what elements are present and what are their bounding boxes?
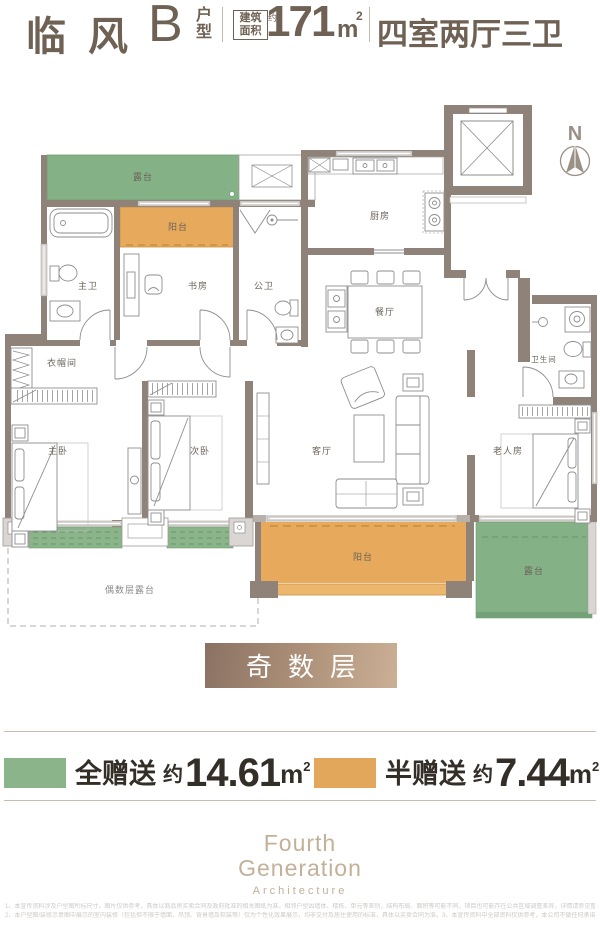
half-gift-label: 半赠送 [385,759,466,789]
label-terrace-top: 露台 [133,171,153,182]
disclaimer-line2: 2、本户型图/装修示意图中展示的室内装修（包括但不限于墙面、吊顶、背景墙及软装等… [5,912,595,921]
unit-letter: B [148,0,183,54]
brand-logo: Fourth Generation Architecture [0,831,600,897]
room-count-label: 四室两厅三卫 [377,9,563,54]
floorplan-page: 临风 B 户型 建筑 面积 约 171 m 2 四室两厅三卫 [0,0,600,934]
area-badge-line2: 面积 [240,25,262,37]
label-kitchen: 厨房 [370,210,390,221]
full-gift-approx: 约 [163,758,183,787]
label-elder-room: 老人房 [493,445,523,456]
full-gift-value: 14.61 [185,754,280,792]
full-gift-label: 全赠送 [75,759,156,789]
label-public-bath: 公卫 [254,281,274,291]
floorplan-drawing: N 露台 阳台 主卫 书房 公卫 厨房 餐厅 衣帽间 主卧 次卧 客厅 卫生间 … [0,60,600,640]
legend-full-gift: 全赠送 约 14.61 m 2 [4,748,310,792]
legend-bottom-rule [4,800,596,801]
header: 临风 B 户型 建筑 面积 约 171 m 2 四室两厅三卫 [0,0,600,58]
label-living: 客厅 [312,445,332,456]
gift-areas [29,155,592,618]
half-gift-swatch-icon [314,758,376,788]
area-value: 171 [266,0,333,47]
full-gift-swatch-icon [4,758,66,788]
legend-half-gift: 半赠送 约 7.44 m 2 [314,748,599,792]
doors [80,250,553,397]
compass-north-label: N [568,123,582,145]
logo-line3: Architecture [0,885,600,897]
disclaimer: 1、本宣传资料涉及户型图所标尺寸，图片仅供参考，具体以商品房买卖合同及政府批准的… [5,903,595,921]
label-cloakroom: 衣帽间 [47,357,77,368]
plan-title: 临风 [26,4,150,62]
label-balcony-bottom: 阳台 [353,551,373,562]
area-badge-line1: 建筑 [240,12,262,24]
label-balcony-top: 阳台 [168,221,188,232]
half-gift-approx: 约 [473,758,493,787]
half-gift-value: 7.44 [495,754,569,792]
header-divider-1 [222,7,223,42]
half-gift-unit: m [569,759,592,790]
area-sup: 2 [356,9,363,23]
label-study: 书房 [188,280,208,291]
label-dining: 餐厅 [375,306,395,317]
full-gift-unit: m [280,759,303,790]
area-badge: 建筑 面积 [233,10,268,40]
full-gift-sup: 2 [303,759,310,774]
disclaimer-line1: 1、本宣传资料涉及户型图所标尺寸，图片仅供参考，具体以商品房买卖合同及政府批准的… [5,903,595,912]
unit-type-label: 户型 [196,7,213,41]
logo-line2: Generation [0,856,600,881]
legend-top-rule [4,731,596,732]
label-master-bedroom: 主卧 [48,445,68,456]
floor-tag-label: 奇数层 [230,647,372,684]
logo-line1: Fourth [0,831,600,856]
label-even-terrace: 偶数层露台 [105,584,155,595]
label-bathroom: 卫生间 [531,354,557,364]
label-terrace-bottom: 露台 [524,565,544,576]
label-master-bath: 主卫 [78,280,98,291]
header-divider-2 [369,7,370,42]
label-second-bedroom: 次卧 [190,445,210,456]
half-gift-sup: 2 [592,759,599,774]
compass: N [561,123,590,176]
floor-tag: 奇数层 [205,643,397,688]
